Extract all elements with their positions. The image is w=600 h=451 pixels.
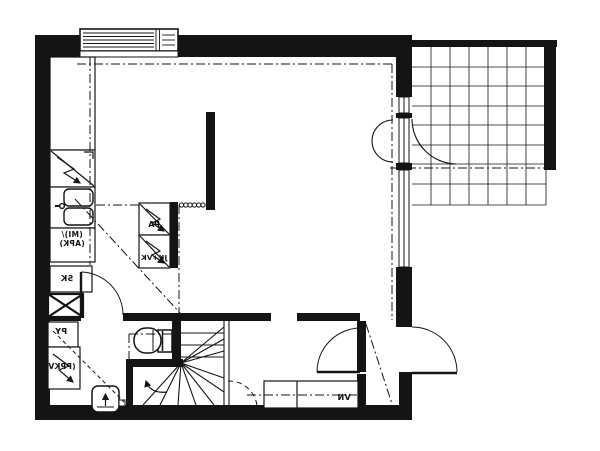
label-vn: VN (331, 393, 357, 402)
label-py: PY (48, 327, 74, 336)
duct-x-box-icon (48, 294, 83, 317)
label-jk-vk: JK+VK (137, 254, 171, 262)
tall-cabinet (50, 57, 95, 150)
toilet-icon (134, 328, 172, 353)
entrance-door-swing (412, 327, 457, 373)
label-sk: SK (54, 274, 80, 283)
top-window (80, 29, 178, 57)
radiator-dots-icon (179, 203, 205, 207)
hall-door-swing (317, 328, 360, 372)
floor-plan: PA JK+VK (MI)/ (APK) SK PY (PPKV) VN (0, 0, 600, 451)
label-ppkv: (PPKV) (36, 363, 84, 372)
floor-plan-drawing (0, 0, 600, 451)
exterior-walls (35, 35, 557, 420)
kitchen-cabinets (50, 57, 95, 292)
label-mi-apk: (MI)/ (APK) (51, 231, 93, 248)
dashed-swing-arc (228, 381, 257, 406)
label-pa: PA (141, 220, 167, 229)
balcony-tile-grid (412, 47, 546, 205)
balcony-door-swing (372, 119, 456, 164)
right-wall-windows (399, 97, 409, 267)
